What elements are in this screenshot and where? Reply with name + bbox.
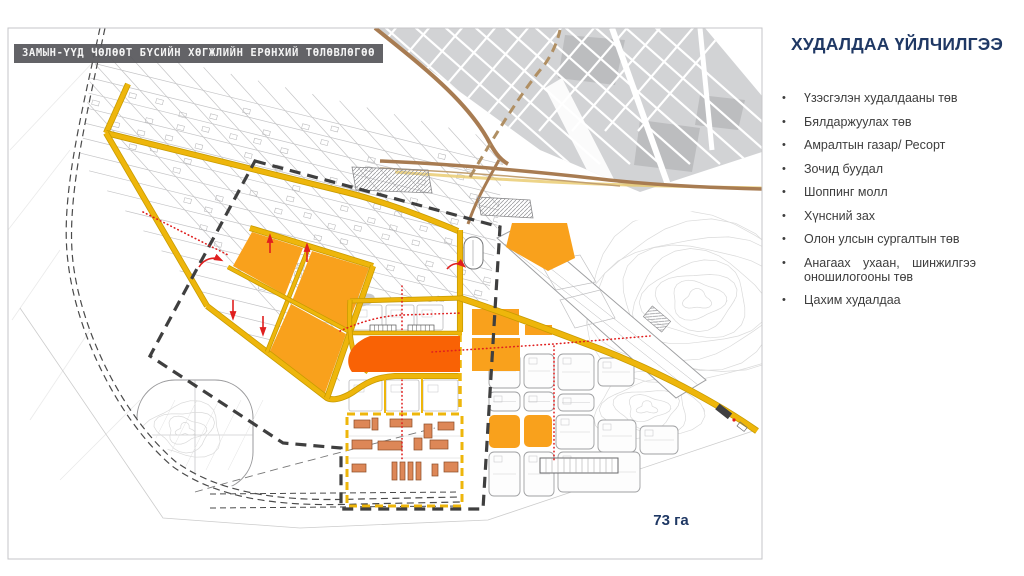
service-item: •Зочид буудал bbox=[782, 162, 1016, 176]
slide: ЗАМЫН-ҮҮД ЧӨЛӨӨТ БҮСИЙН ХӨГЖЛИЙН ЕРӨНХИЙ… bbox=[0, 0, 1024, 576]
bullet-icon: • bbox=[782, 91, 804, 105]
bullet-icon: • bbox=[782, 138, 804, 152]
service-label: Бялдаржуулах төв bbox=[804, 115, 976, 129]
service-label: Хүнсний зах bbox=[804, 209, 976, 223]
services-list: •Үзэсгэлэн худалдааны төв•Бялдаржуулах т… bbox=[778, 91, 1016, 307]
service-item: •Анагаах ухаан, шинжилгээ оношилогооны т… bbox=[782, 256, 1016, 284]
bullet-icon: • bbox=[782, 185, 804, 199]
bullet-icon: • bbox=[782, 256, 804, 270]
service-label: Амралтын газар/ Ресорт bbox=[804, 138, 976, 152]
service-label: Үзэсгэлэн худалдааны төв bbox=[804, 91, 976, 105]
service-label: Цахим худалдаа bbox=[804, 293, 976, 307]
bullet-icon: • bbox=[782, 293, 804, 307]
service-item: •Амралтын газар/ Ресорт bbox=[782, 138, 1016, 152]
service-label: Анагаах ухаан, шинжилгээ оношилогооны тө… bbox=[804, 256, 976, 284]
service-item: •Хүнсний зах bbox=[782, 209, 1016, 223]
bullet-icon: • bbox=[782, 232, 804, 246]
service-label: Олон улсын сургалтын төв bbox=[804, 232, 976, 246]
service-item: •Олон улсын сургалтын төв bbox=[782, 232, 1016, 246]
bullet-icon: • bbox=[782, 162, 804, 176]
map-title-overlay: ЗАМЫН-ҮҮД ЧӨЛӨӨТ БҮСИЙН ХӨГЖЛИЙН ЕРӨНХИЙ… bbox=[14, 44, 383, 63]
service-label: Зочид буудал bbox=[804, 162, 976, 176]
bullet-icon: • bbox=[782, 209, 804, 223]
service-item: •Үзэсгэлэн худалдааны төв bbox=[782, 91, 1016, 105]
service-item: •Бялдаржуулах төв bbox=[782, 115, 1016, 129]
services-panel: ХУДАЛДАА ҮЙЛЧИЛГЭЭ •Үзэсгэлэн худалдааны… bbox=[778, 34, 1016, 317]
service-label: Шоппинг молл bbox=[804, 185, 976, 199]
service-item: •Шоппинг молл bbox=[782, 185, 1016, 199]
panel-title: ХУДАЛДАА ҮЙЛЧИЛГЭЭ bbox=[778, 34, 1016, 55]
highlight-block bbox=[348, 336, 460, 372]
bullet-icon: • bbox=[782, 115, 804, 129]
service-item: •Цахим худалдаа bbox=[782, 293, 1016, 307]
area-label: 73 га bbox=[636, 512, 706, 529]
